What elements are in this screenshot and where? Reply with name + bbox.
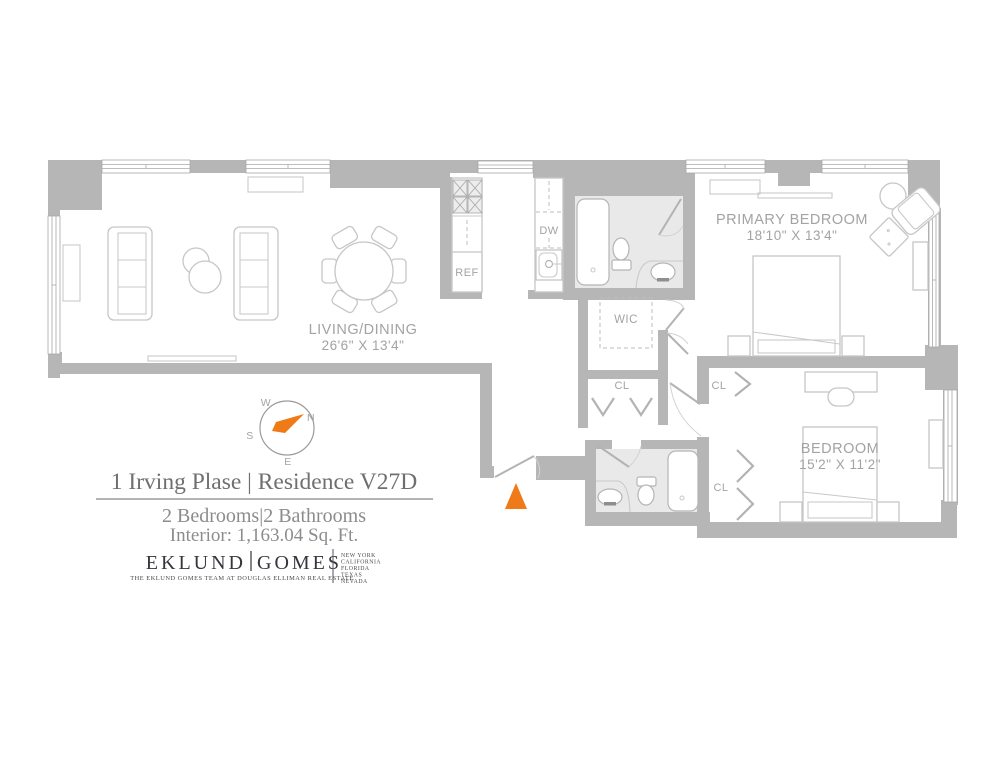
- entrance-arrow-icon: [505, 483, 527, 509]
- bedroom-closet-lower: CL: [713, 450, 753, 520]
- window: [102, 160, 190, 173]
- interior-sqft-line: Interior: 1,163.04 Sq. Ft.: [170, 525, 358, 546]
- desk-chair: [828, 388, 854, 406]
- compass-north: N: [307, 412, 315, 424]
- brand-tagline: THE EKLUND GOMES TEAM AT DOUGLAS ELLIMAN…: [130, 575, 353, 582]
- radiator: [63, 245, 80, 301]
- dishwasher-label: DW: [539, 225, 558, 237]
- window-treatment: [758, 193, 832, 198]
- closet-label: CL: [614, 380, 629, 392]
- bathtub-icon: [668, 451, 698, 511]
- sofa: [234, 227, 278, 320]
- bedroom-label: BEDROOM: [801, 441, 879, 457]
- closet-label: CL: [711, 380, 726, 392]
- window: [246, 160, 330, 173]
- second-bathroom: [596, 445, 698, 512]
- bathroom-sink-icon: [651, 263, 675, 282]
- desk: [805, 372, 877, 406]
- brand-name-left: EKLUND: [146, 552, 246, 574]
- primary-bathroom: [575, 196, 683, 288]
- window: [822, 160, 908, 173]
- window: [929, 212, 939, 347]
- brand-logo: EKLUND GOMES THE EKLUND GOMES TEAM AT DO…: [130, 549, 381, 585]
- dresser: [913, 242, 928, 290]
- bed: [753, 256, 840, 356]
- dresser: [929, 420, 943, 468]
- window: [48, 216, 60, 354]
- hall-closet: CL: [592, 380, 652, 415]
- nightstand: [877, 502, 899, 522]
- nightstand: [780, 502, 802, 522]
- bedroom-closet-upper: CL: [711, 372, 750, 396]
- page-title: 1 Irving Plase | Residence V27D: [111, 469, 417, 495]
- toilet-icon: [612, 238, 631, 270]
- living-room-label: LIVING/DINING: [309, 322, 418, 338]
- nightstand: [728, 336, 750, 356]
- info-block: 1 Irving Plase | Residence V27D 2 Bedroo…: [96, 469, 433, 546]
- brand-state: FLORIDA: [341, 566, 370, 572]
- nightstand: [842, 336, 864, 356]
- bifold-door-icon: [737, 488, 753, 520]
- toilet-icon: [637, 477, 656, 505]
- primary-bedroom-label: PRIMARY BEDROOM: [716, 212, 868, 228]
- window: [944, 390, 957, 502]
- floorplan-svg: LIVING/DINING 26'6" X 13'4" REF DW: [0, 0, 1000, 772]
- compass-needle: [272, 414, 304, 433]
- kitchen: REF DW: [452, 178, 563, 292]
- window: [686, 160, 765, 173]
- brand-states: NEW YORK CALIFORNIA FLORIDA TEXAS NEVADA: [341, 553, 381, 585]
- beds-baths-line: 2 Bedrooms|2 Bathrooms: [162, 505, 366, 527]
- wic-door: [666, 308, 684, 330]
- window-treatment: [248, 177, 303, 192]
- primary-bedroom: PRIMARY BEDROOM 18'10" X 13'4": [710, 180, 942, 356]
- brand-state: NEVADA: [341, 579, 368, 585]
- window-treatment: [710, 180, 760, 194]
- living-room-dims: 26'6" X 13'4": [322, 338, 405, 353]
- bathroom-sink-icon: [598, 489, 622, 506]
- compass-south: S: [246, 430, 254, 442]
- tv-console: [148, 356, 236, 361]
- living-dining-room: LIVING/DINING 26'6" X 13'4": [63, 177, 417, 361]
- brand-state: CALIFORNIA: [341, 560, 381, 566]
- bifold-door-icon: [735, 372, 750, 396]
- walk-in-closet: WIC: [600, 298, 684, 348]
- bifold-door-icon: [592, 398, 614, 415]
- bifold-door-icon: [737, 450, 753, 482]
- dining-set: [322, 225, 406, 314]
- compass-icon: W N S E: [246, 397, 315, 468]
- sofa: [108, 227, 152, 320]
- closet-label: CL: [713, 482, 728, 494]
- brand-state: NEW YORK: [341, 553, 376, 559]
- wic-label: WIC: [614, 314, 638, 326]
- window: [478, 161, 533, 173]
- stove-icon: [453, 180, 482, 213]
- brand-name-right: GOMES: [257, 552, 342, 574]
- primary-bedroom-door: [667, 333, 688, 354]
- coffee-tables: [183, 248, 221, 293]
- primary-bedroom-dims: 18'10" X 13'4": [747, 228, 838, 243]
- refrigerator-label: REF: [455, 267, 479, 279]
- bedroom-dims: 15'2" X 11'2": [799, 457, 881, 472]
- kitchen-sink-icon: [536, 250, 562, 280]
- compass-west: W: [261, 397, 271, 409]
- floor-plan-page: LIVING/DINING 26'6" X 13'4" REF DW: [0, 0, 1000, 772]
- dining-table: [335, 242, 393, 300]
- second-bedroom: CL CL BEDROOM 15'2" X 11'2": [670, 372, 943, 522]
- compass-east: E: [284, 456, 292, 468]
- bifold-door-icon: [630, 398, 652, 415]
- entry-door: [495, 456, 534, 477]
- brand-state: TEXAS: [341, 573, 362, 579]
